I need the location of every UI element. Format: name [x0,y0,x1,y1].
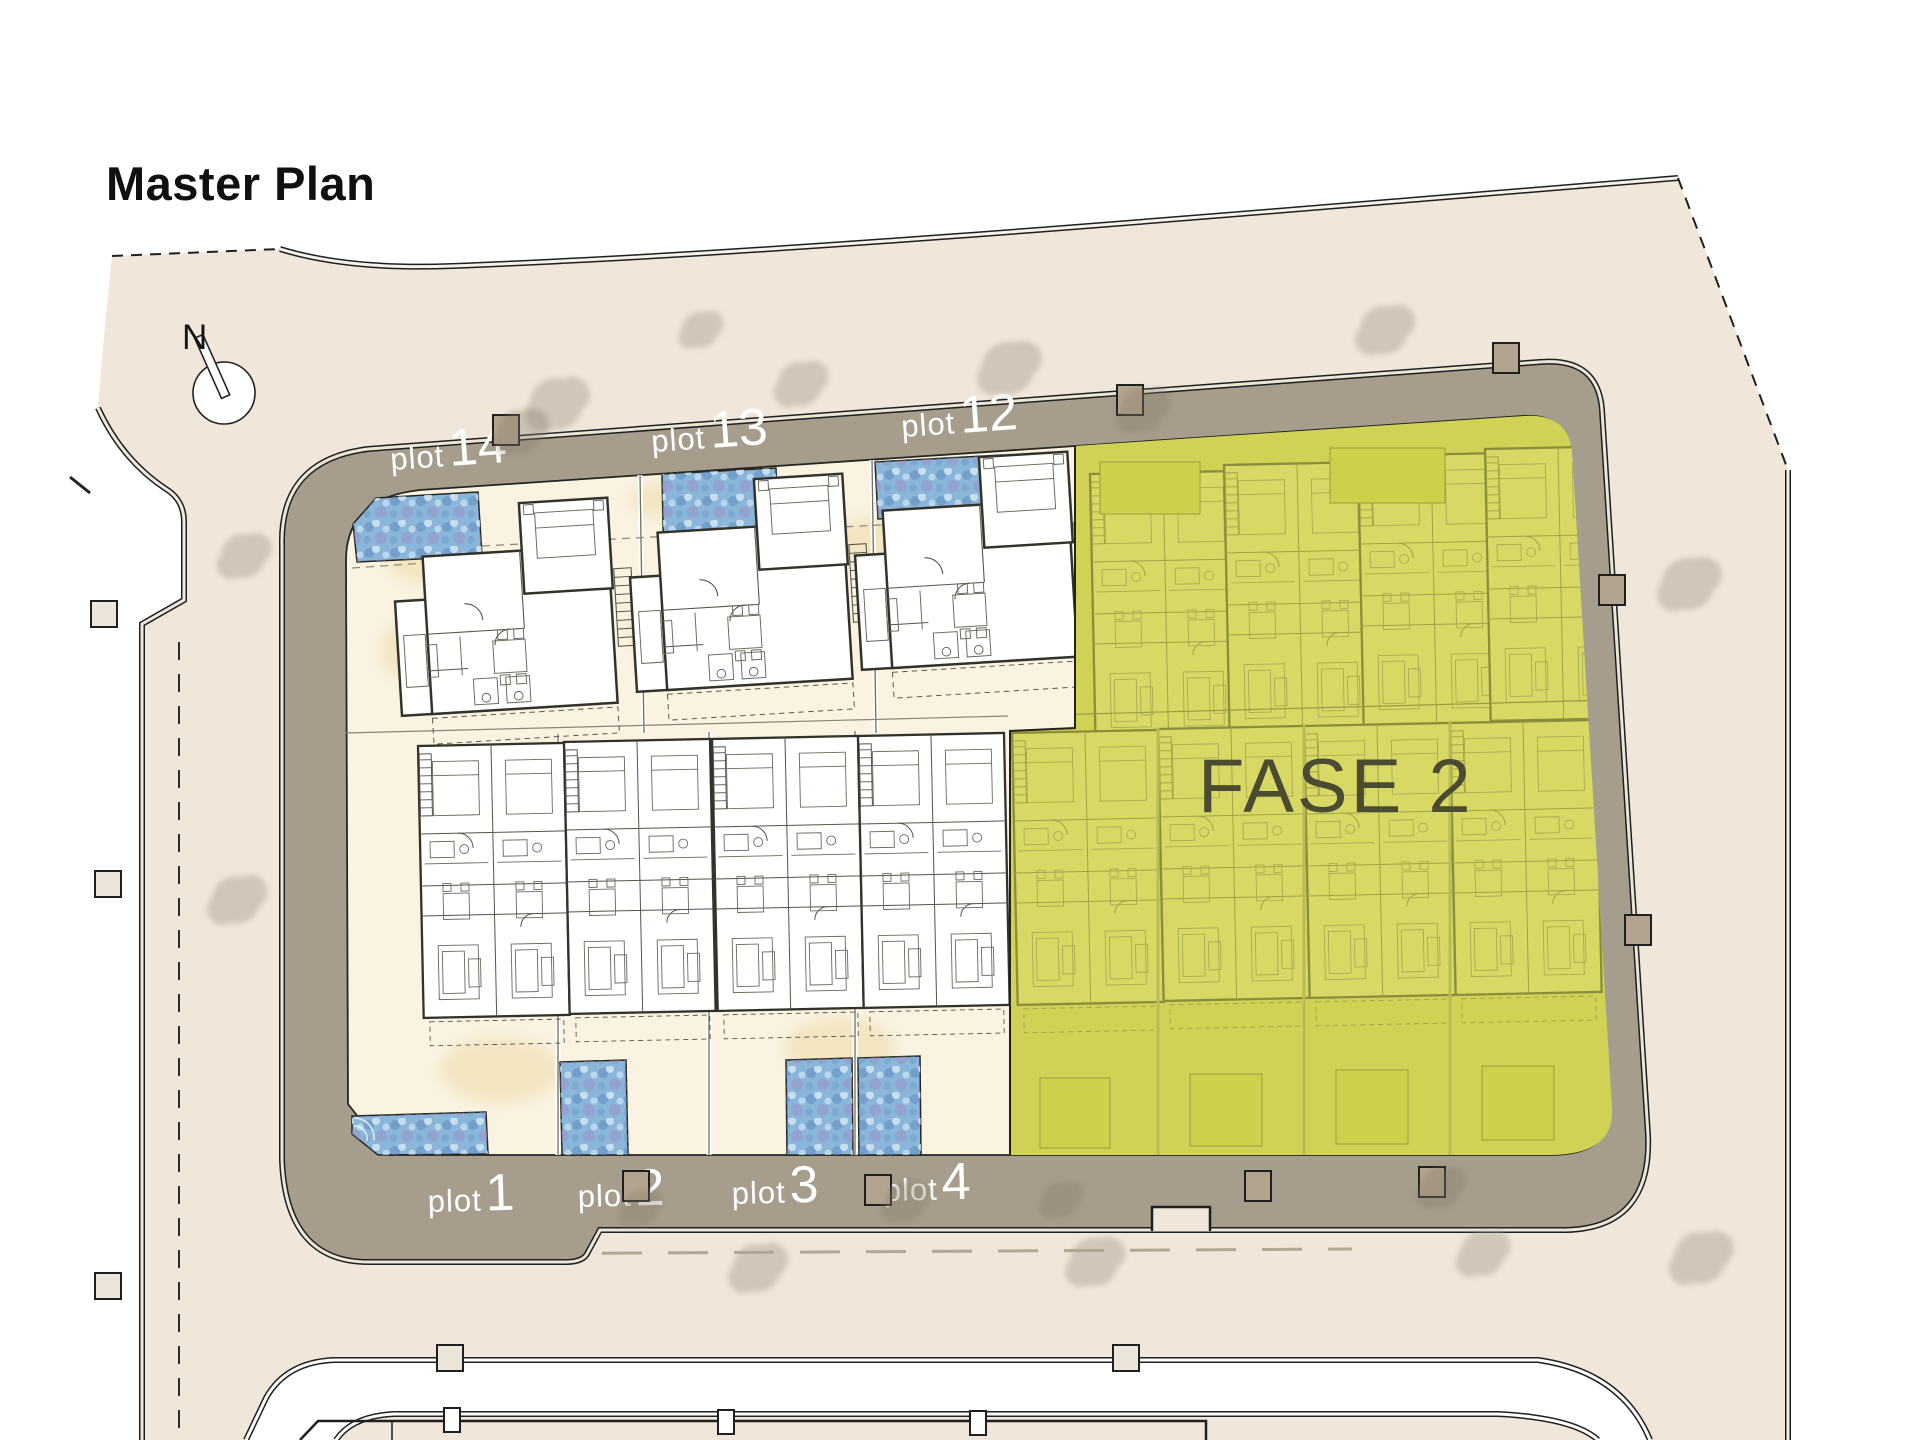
lamp-post [1599,575,1625,605]
tree-blob [728,1262,759,1293]
tree-blob [234,875,268,909]
tree-blob [518,409,549,440]
phase-pool-outline [1190,1074,1262,1146]
lamp-post [95,871,121,897]
tree-blob [977,362,1011,396]
tree-blob [881,1197,907,1223]
phase-2-label: FASE 2 [1198,744,1474,829]
lamp-post [1245,1171,1271,1201]
lamp-post [437,1345,463,1371]
tree-blob [494,427,523,456]
page-title: Master Plan [106,157,375,210]
swimming-pool-texture [352,1112,488,1155]
apartment-unit-plan [418,743,570,1046]
tree-blob [1480,1231,1511,1262]
tree-blob [618,1204,641,1227]
tree-blob [1355,324,1386,355]
apartment-unit-plan [564,739,716,1042]
tree-blob [1382,305,1416,339]
lamp-post [1625,915,1651,945]
phase-pool-outline [1482,1066,1554,1140]
tree-blob [553,377,589,413]
tree-blob [1416,1183,1442,1209]
apartment-unit-plan [858,733,1010,1036]
tree-blob [698,311,723,336]
tree-blob [1456,1249,1485,1278]
tree-blob [1005,341,1041,377]
tree-blob [1116,405,1145,434]
lamp-post [91,601,117,627]
tree-blob [1657,578,1691,612]
tree-blob [1669,1252,1703,1286]
lamp-post [1113,1345,1139,1371]
tree-blob [678,326,701,349]
tree-blob [774,379,803,408]
apartment-unit-plan [1224,462,1376,765]
phase-pool-outline [1040,1078,1110,1148]
tree-blob [1697,1231,1733,1267]
apartment-unit-plan [712,736,864,1039]
master-plan-drawing: FASE 2 plot14 plot13 plot12 plot1 plot2 … [0,0,1920,1440]
apartment-unit-plan [1012,730,1164,1033]
survey-tick [70,477,90,493]
tree-blob [638,1189,663,1214]
north-label: N [182,318,207,357]
tree-blob [755,1243,789,1277]
swimming-pool-texture [786,1058,853,1155]
phase-pool-outline [1330,448,1445,503]
tree-blob [1058,1181,1083,1206]
tree-blob [1038,1196,1061,1219]
tree-blob [1092,1237,1126,1271]
swimming-pool-texture [858,1056,921,1155]
tree-blob [217,551,246,580]
phase-pool-outline [1100,462,1200,514]
swimming-pool-texture [560,1060,628,1155]
tree-blob [1065,1256,1096,1287]
tree-blob [903,1181,931,1209]
plan-line [979,452,1073,548]
band-entry-notch [1152,1207,1210,1231]
tree-blob [207,894,238,925]
phase-pool-outline [1336,1070,1408,1144]
tree-blob [1140,387,1171,418]
tree-blob [1685,557,1721,593]
swimming-pool-texture [353,492,482,562]
plan-line [754,474,848,570]
tree-blob [798,361,829,392]
master-plan-page: FASE 2 plot14 plot13 plot12 plot1 plot2 … [0,0,1920,1440]
lamp-post [444,1408,460,1432]
lamp-post [718,1410,734,1434]
lamp-post [95,1273,121,1299]
lamp-post [970,1411,986,1435]
lamp-post [1493,343,1519,373]
tree-blob [1438,1167,1466,1195]
phase-2-overlay: FASE 2 [1010,416,1637,1155]
tree-blob [241,533,272,564]
sand-patch [440,1038,560,1102]
plan-line [519,498,613,594]
